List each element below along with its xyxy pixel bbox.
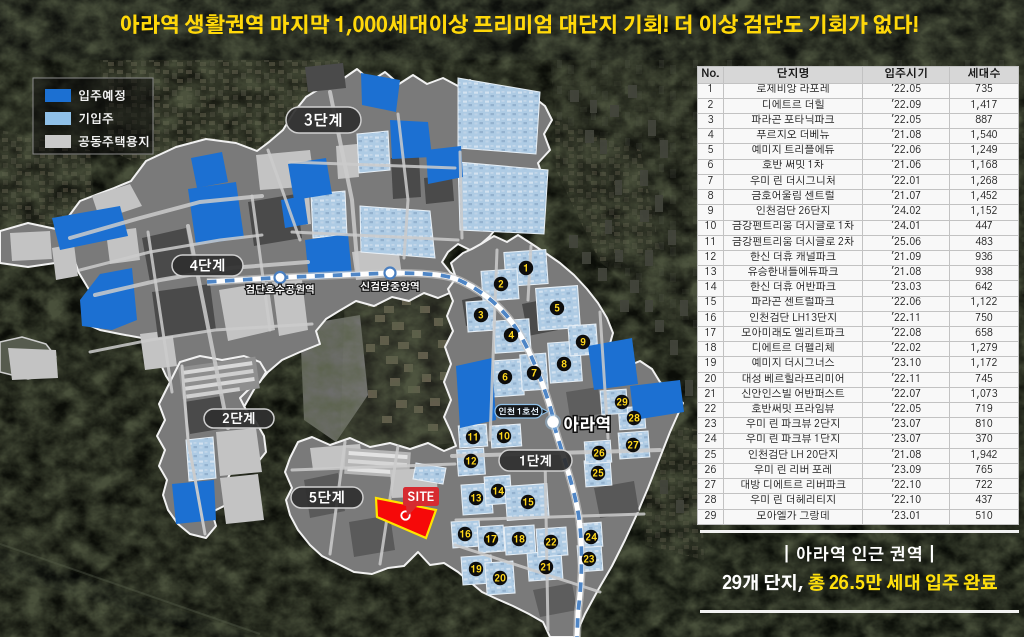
- svg-text:19: 19: [470, 564, 483, 574]
- svg-text:2단계: 2단계: [222, 412, 256, 426]
- svg-text:26: 26: [593, 448, 606, 458]
- svg-text:22: 22: [545, 537, 557, 547]
- svg-text:29: 29: [616, 397, 629, 407]
- svg-text:28: 28: [628, 413, 640, 423]
- svg-text:7: 7: [531, 368, 537, 378]
- svg-text:20: 20: [494, 573, 507, 583]
- svg-text:27: 27: [627, 440, 639, 450]
- svg-text:4단계: 4단계: [189, 259, 225, 274]
- svg-text:13: 13: [470, 493, 482, 503]
- svg-text:21: 21: [540, 562, 551, 572]
- svg-text:24: 24: [585, 532, 597, 542]
- svg-text:검단호수공원역: 검단호수공원역: [245, 284, 315, 296]
- svg-text:5: 5: [554, 303, 560, 313]
- svg-text:입주예정: 입주예정: [78, 89, 126, 103]
- svg-text:2: 2: [498, 279, 504, 289]
- svg-text:15: 15: [522, 497, 534, 507]
- svg-text:10: 10: [498, 431, 511, 441]
- svg-text:신검당중앙역: 신검당중앙역: [360, 281, 420, 293]
- svg-text:25: 25: [592, 468, 604, 478]
- svg-text:17: 17: [485, 534, 497, 544]
- svg-text:공동주택용지: 공동주택용지: [78, 135, 150, 149]
- svg-text:5단계: 5단계: [309, 491, 345, 506]
- svg-text:3단계: 3단계: [304, 112, 343, 129]
- svg-text:8: 8: [561, 359, 567, 369]
- svg-text:11: 11: [467, 432, 478, 442]
- svg-text:16: 16: [459, 529, 472, 539]
- svg-text:1: 1: [523, 263, 529, 273]
- svg-text:12: 12: [465, 456, 477, 466]
- svg-text:1단계: 1단계: [519, 454, 553, 468]
- svg-text:기입주: 기입주: [78, 112, 114, 126]
- svg-text:인천 1호선: 인천 1호선: [498, 408, 539, 417]
- svg-text:14: 14: [492, 486, 504, 496]
- svg-text:SITE: SITE: [408, 492, 435, 504]
- svg-text:3: 3: [478, 310, 484, 320]
- svg-text:4: 4: [508, 330, 514, 340]
- svg-text:18: 18: [513, 534, 525, 544]
- svg-text:아라역: 아라역: [563, 416, 611, 434]
- svg-text:23: 23: [583, 554, 595, 564]
